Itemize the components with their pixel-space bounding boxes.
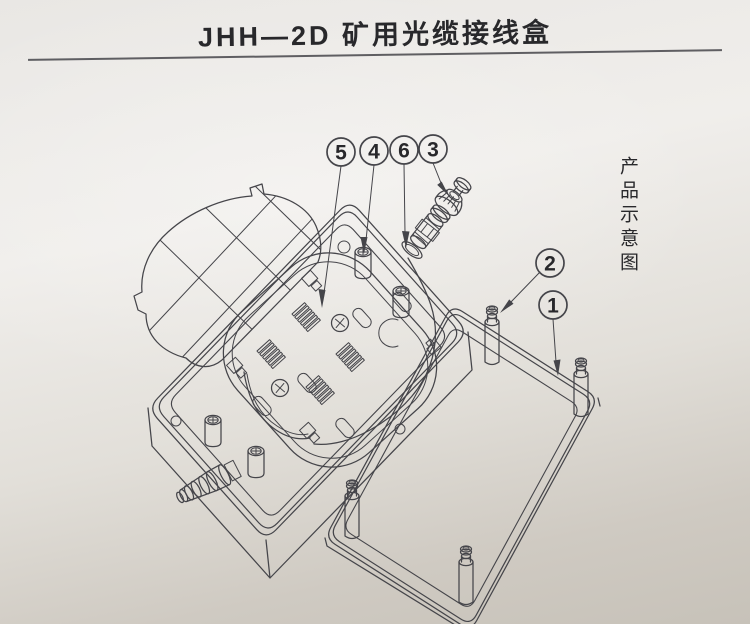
- plate-outer-edge: [329, 309, 595, 624]
- leader-line-6: [404, 164, 405, 233]
- arrowhead-5: [319, 289, 326, 308]
- tray-slot: [334, 416, 357, 440]
- leader-line-4: [366, 165, 374, 240]
- standoff-screw: [355, 247, 371, 278]
- splice-tray: [200, 230, 459, 490]
- tray-clip: [300, 422, 322, 444]
- rim-hole: [171, 416, 181, 426]
- box-walls: [148, 332, 472, 578]
- exploded-view-diagram: 5 4 6 3 2 1: [0, 0, 750, 624]
- splice-comb: [336, 343, 364, 372]
- tray-inner-wall: [212, 241, 449, 479]
- photographed-diagram-page: { "page": { "title": "JHH—2D 矿用光缆接线盒", "…: [0, 0, 750, 624]
- callouts: 5 4 6 3 2 1: [319, 135, 568, 376]
- base-plate: [325, 306, 600, 624]
- box-rim-mid: [159, 212, 456, 528]
- splice-comb: [292, 303, 320, 332]
- callout-4-number: 4: [368, 141, 380, 164]
- tray-slot: [351, 306, 374, 330]
- fiber-guide: [379, 319, 398, 347]
- leader-line-1: [553, 319, 556, 362]
- arrowhead-4: [361, 237, 368, 254]
- callout-2-number: 2: [544, 253, 556, 276]
- callout-3-number: 3: [427, 139, 439, 162]
- callout-6-number: 6: [398, 140, 410, 163]
- rim-hole: [338, 241, 350, 253]
- splice-comb: [306, 376, 334, 405]
- leader-line-2: [510, 272, 540, 303]
- lid-outline: [134, 184, 321, 367]
- fiber-curve-right: [314, 258, 436, 444]
- tray-wall-arc-inner: [247, 374, 308, 435]
- tray-slot: [296, 371, 319, 395]
- arrowhead-6: [402, 231, 410, 248]
- cable-gland-exploded: [398, 172, 477, 262]
- tray-screw: [272, 380, 289, 397]
- tray-clip: [302, 270, 324, 292]
- tray-outline: [200, 230, 459, 490]
- standoff-screw: [205, 415, 221, 446]
- standoff-screw: [248, 446, 264, 477]
- tray-screw: [332, 315, 349, 332]
- callout-5-number: 5: [335, 142, 347, 165]
- splice-comb: [257, 340, 285, 369]
- box-lid: [134, 170, 420, 405]
- tray-wall-arc: [244, 372, 310, 439]
- gland-cap-plug: [450, 175, 473, 198]
- leader-line-3: [433, 163, 441, 183]
- plate-rim: [333, 315, 589, 622]
- corner-post: [459, 546, 473, 605]
- callout-1-number: 1: [547, 295, 559, 318]
